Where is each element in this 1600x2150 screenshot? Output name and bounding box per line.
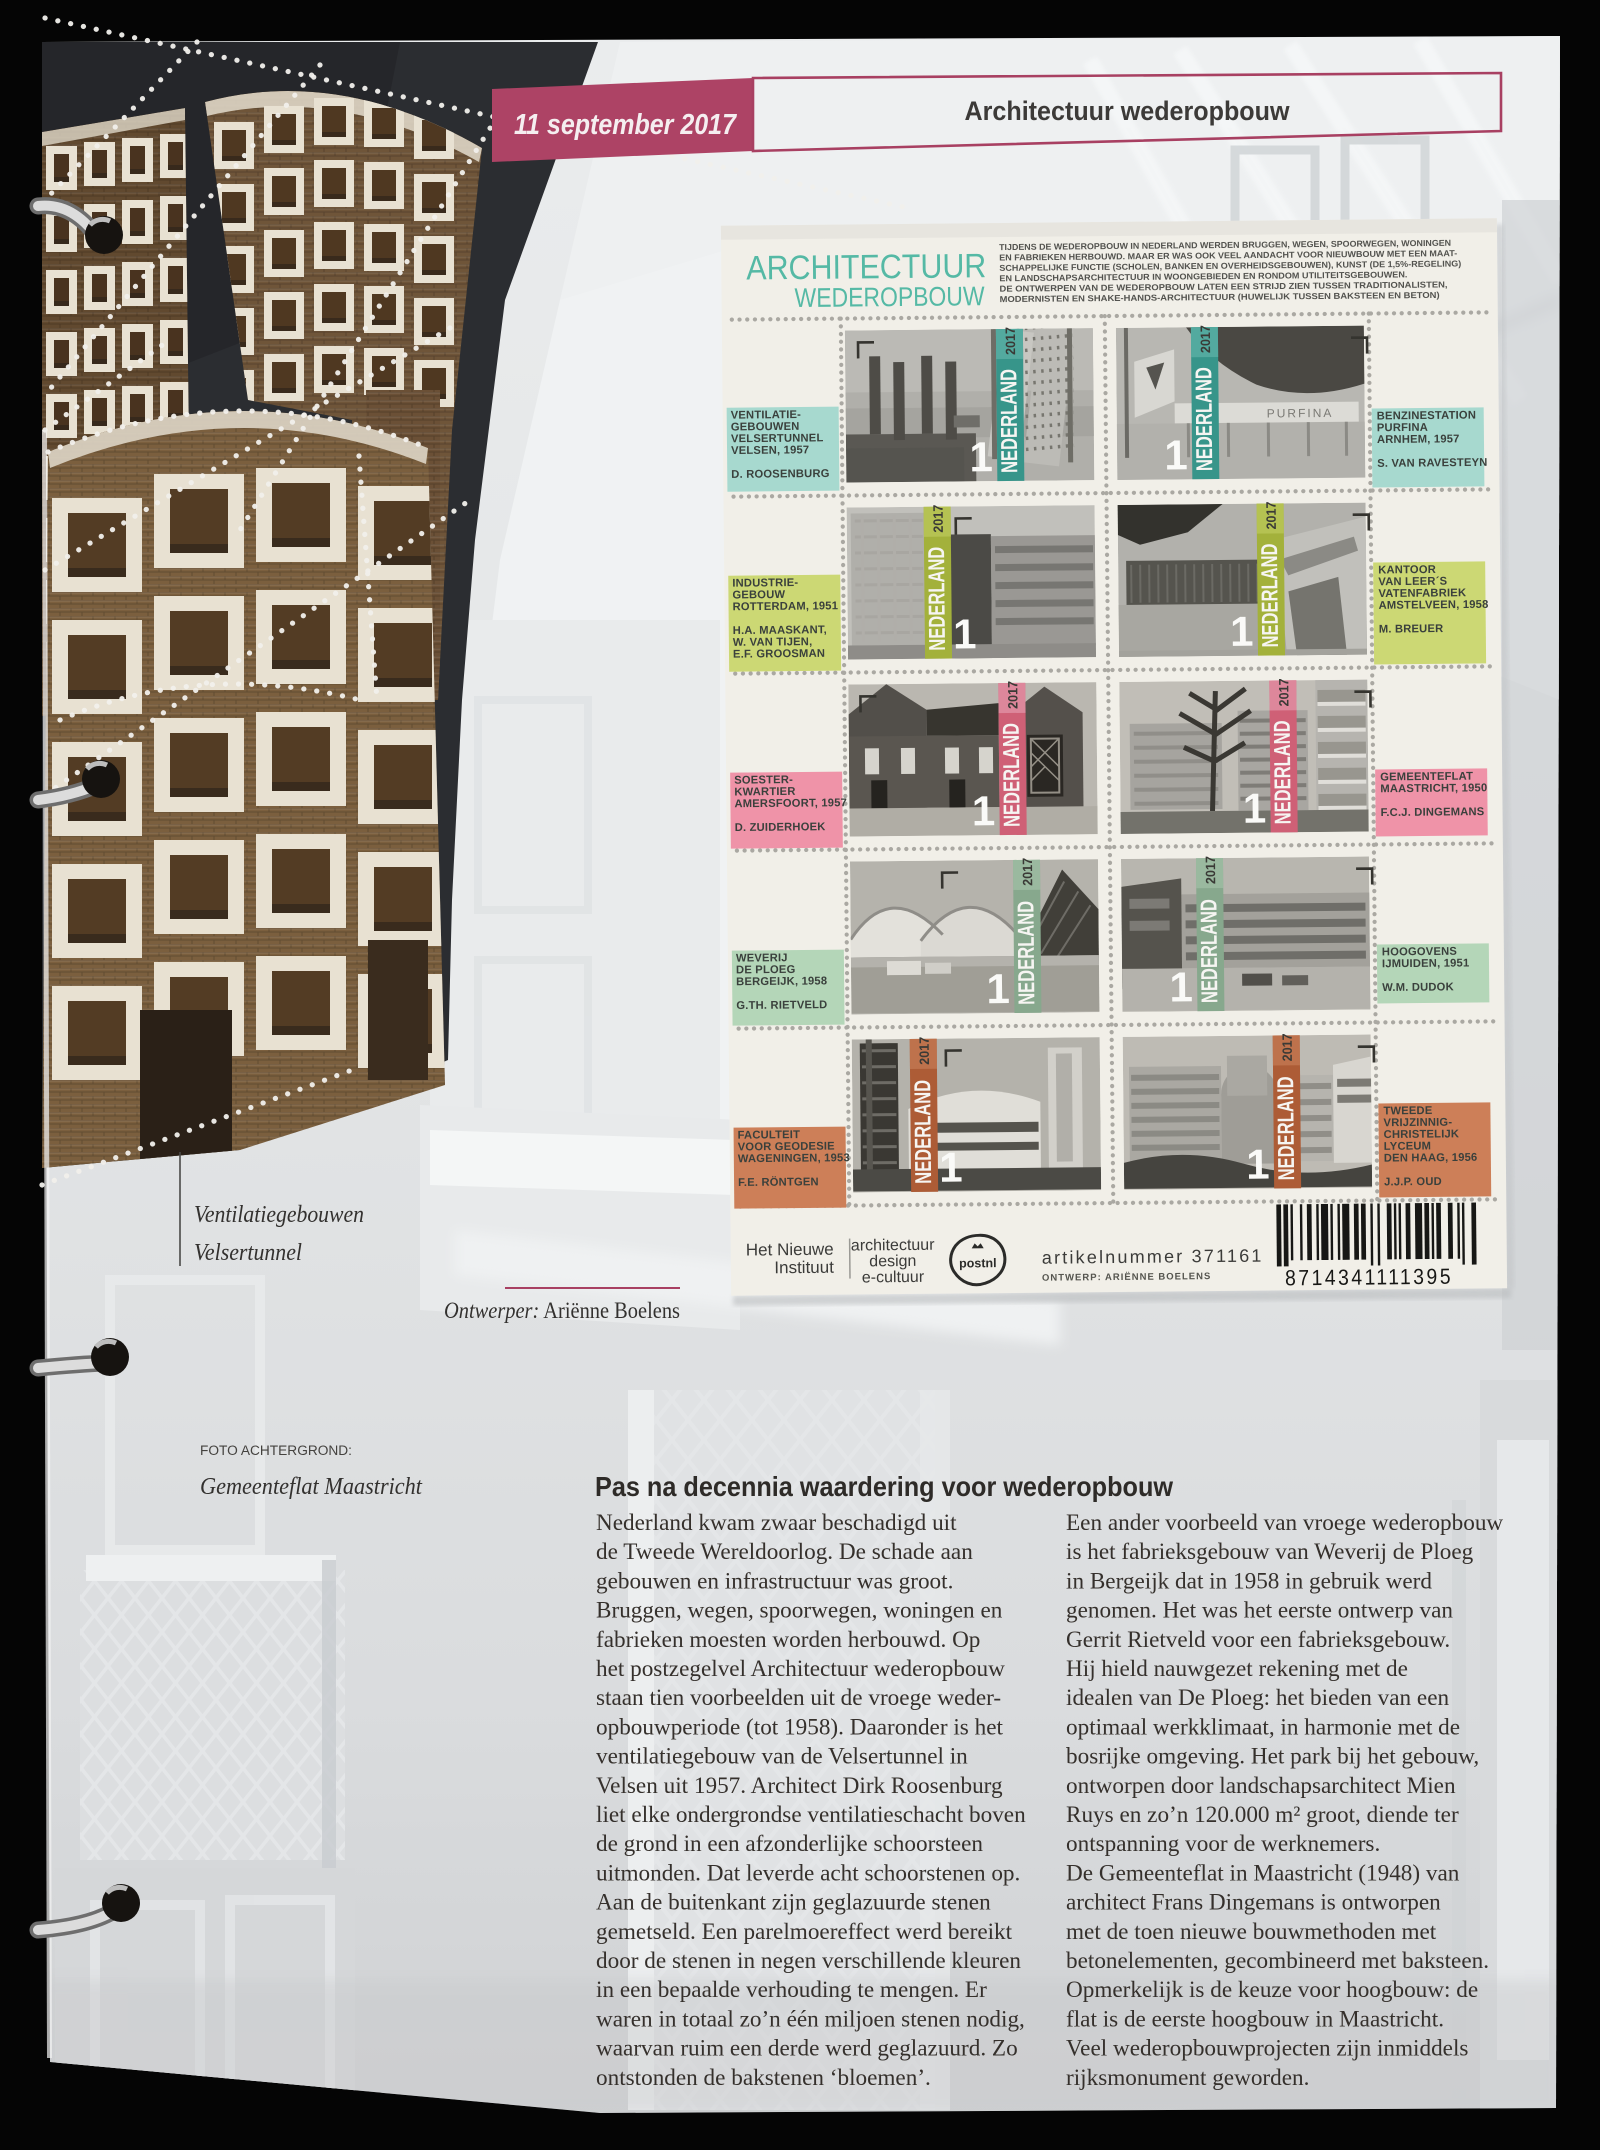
svg-text:FACULTEIT: FACULTEIT <box>738 1129 801 1142</box>
svg-text:PURFINA: PURFINA <box>1267 406 1334 421</box>
svg-text:2017: 2017 <box>1264 501 1279 529</box>
svg-text:Instituut: Instituut <box>774 1258 834 1278</box>
svg-text:Gemeenteflat Maastricht: Gemeenteflat Maastricht <box>200 1474 423 1500</box>
svg-text:gemetseld. Een parelmoereffect: gemetseld. Een parelmoereffect werd bere… <box>596 1919 1013 1945</box>
svg-text:VAN LEER´S: VAN LEER´S <box>1378 576 1447 589</box>
svg-text:waren in totaal zo’n één miljo: waren in totaal zo’n één miljoen stenen … <box>596 2006 1025 2032</box>
svg-text:liet elke ondergrondse ventila: liet elke ondergrondse ventilatieschacht… <box>596 1802 1026 1828</box>
svg-text:2017: 2017 <box>1003 327 1018 355</box>
svg-text:1: 1 <box>1230 608 1254 655</box>
svg-text:waarvan ruim een derde werd ge: waarvan ruim een derde werd geglazuurd. … <box>596 2036 1018 2062</box>
svg-text:uitmonden. Dat leverde acht sc: uitmonden. Dat leverde acht schoorstenen… <box>596 1860 1020 1886</box>
svg-text:1: 1 <box>1246 1141 1270 1188</box>
svg-text:D. ROOSENBURG: D. ROOSENBURG <box>731 468 830 481</box>
svg-text:NEDERLAND: NEDERLAND <box>1190 367 1217 471</box>
svg-text:Architectuur wederopbouw: Architectuur wederopbouw <box>965 96 1291 126</box>
svg-text:NEDERLAND: NEDERLAND <box>909 1080 936 1184</box>
svg-text:GEBOUWEN: GEBOUWEN <box>731 421 800 434</box>
svg-text:VATENFABRIEK: VATENFABRIEK <box>1378 587 1466 600</box>
svg-text:KWARTIER: KWARTIER <box>734 786 795 799</box>
svg-text:DEN HAAG, 1956: DEN HAAG, 1956 <box>1384 1152 1478 1165</box>
svg-text:e-cultuur: e-cultuur <box>862 1269 925 1287</box>
svg-text:ROTTERDAM, 1951: ROTTERDAM, 1951 <box>732 600 838 613</box>
svg-text:F.E. RÖNTGEN: F.E. RÖNTGEN <box>738 1175 819 1189</box>
svg-text:Pas na decennia waardering voo: Pas na decennia waardering voor wederopb… <box>595 1471 1173 1502</box>
svg-text:opbouwperiode (tot 1958). Daar: opbouwperiode (tot 1958). Daaronder is h… <box>596 1714 1004 1740</box>
svg-text:design: design <box>869 1253 916 1270</box>
svg-text:de Tweede Wereldoorlog. De sch: de Tweede Wereldoorlog. De schade aan <box>596 1539 973 1565</box>
svg-text:LYCEUM: LYCEUM <box>1384 1140 1432 1152</box>
svg-text:VENTILATIE-: VENTILATIE- <box>731 409 802 422</box>
svg-text:VRIJZINNIG-: VRIJZINNIG- <box>1383 1117 1452 1130</box>
svg-text:idealen van De Ploeg: het bied: idealen van De Ploeg: het bieden van een <box>1066 1685 1449 1711</box>
svg-text:D. ZUIDERHOEK: D. ZUIDERHOEK <box>735 821 826 834</box>
svg-text:AMSTELVEEN, 1958: AMSTELVEEN, 1958 <box>1379 599 1489 612</box>
svg-text:1: 1 <box>986 965 1010 1012</box>
svg-text:1: 1 <box>1243 785 1267 832</box>
svg-text:met de toen nieuwe bouwmethode: met de toen nieuwe bouwmethoden met <box>1066 1919 1437 1945</box>
svg-text:optimaal werkklimaat, in harmo: optimaal werkklimaat, in harmonie met de <box>1066 1714 1460 1740</box>
svg-text:Aan de buitenkant zijn geglazu: Aan de buitenkant zijn geglazuurde stene… <box>596 1890 991 1916</box>
svg-text:NEDERLAND: NEDERLAND <box>998 723 1025 827</box>
svg-text:GEBOUW: GEBOUW <box>732 589 785 602</box>
svg-text:Ventilatiegebouwen: Ventilatiegebouwen <box>194 1202 364 1228</box>
svg-text:WEDEROPBOUW: WEDEROPBOUW <box>794 281 985 313</box>
svg-text:G.TH. RIETVELD: G.TH. RIETVELD <box>736 999 827 1012</box>
svg-text:is het fabrieksgebouw van Weve: is het fabrieksgebouw van Weverij de Plo… <box>1066 1539 1474 1565</box>
svg-text:het postzegelvel Architectuur: het postzegelvel Architectuur wederopbou… <box>596 1656 1005 1682</box>
svg-text:Opmerkelijk is de keuze voor h: Opmerkelijk is de keuze voor hoogbouw: d… <box>1066 1977 1478 2003</box>
svg-text:BENZINESTATION: BENZINESTATION <box>1377 410 1476 423</box>
svg-text:1: 1 <box>939 1143 963 1190</box>
svg-text:ontspanning voor de werknemers: ontspanning voor de werknemers. <box>1066 1831 1380 1857</box>
svg-text:W. VAN TIJEN,: W. VAN TIJEN, <box>733 636 813 649</box>
svg-text:S. VAN RAVESTEYN: S. VAN RAVESTEYN <box>1377 457 1487 470</box>
svg-text:de grond in een afzonderlijke: de grond in een afzonderlijke schoorstee… <box>596 1831 983 1857</box>
svg-text:ventilatiegebouw van de Velser: ventilatiegebouw van de Velsertunnel in <box>596 1744 968 1770</box>
svg-text:8714341111395: 8714341111395 <box>1285 1264 1453 1291</box>
svg-text:MAASTRICHT, 1950: MAASTRICHT, 1950 <box>1380 782 1487 795</box>
svg-text:ontstonden de bakstenen ‘bloem: ontstonden de bakstenen ‘bloemen’. <box>596 2065 931 2091</box>
svg-text:DE PLOEG: DE PLOEG <box>736 964 796 977</box>
svg-text:in een bepaalde verhouding te: in een bepaalde verhouding te mengen. Er <box>596 1977 987 2003</box>
svg-text:2017: 2017 <box>1198 325 1213 353</box>
svg-text:TWEEDE: TWEEDE <box>1383 1105 1433 1117</box>
svg-text:Bruggen, wegen, spoorwegen, wo: Bruggen, wegen, spoorwegen, woningen en <box>596 1598 1003 1624</box>
svg-text:WEVERIJ: WEVERIJ <box>736 952 788 964</box>
svg-text:PURFINA: PURFINA <box>1377 422 1428 434</box>
svg-text:postnl: postnl <box>959 1256 997 1270</box>
svg-text:F.C.J. DINGEMANS: F.C.J. DINGEMANS <box>1380 806 1484 819</box>
svg-text:1: 1 <box>1164 431 1188 478</box>
svg-text:staan tien voorbeelden uit de: staan tien voorbeelden uit de vroege wed… <box>596 1685 1001 1711</box>
svg-text:artikelnummer 371161: artikelnummer 371161 <box>1042 1246 1264 1268</box>
svg-text:2017: 2017 <box>931 505 946 533</box>
svg-text:ARNHEM, 1957: ARNHEM, 1957 <box>1377 433 1460 446</box>
svg-text:2017: 2017 <box>1280 1033 1295 1061</box>
svg-text:1: 1 <box>969 433 993 480</box>
svg-text:HOOGOVENS: HOOGOVENS <box>1382 946 1458 959</box>
svg-text:M. BREUER: M. BREUER <box>1379 623 1444 636</box>
svg-text:CHRISTELIJK: CHRISTELIJK <box>1384 1128 1460 1141</box>
svg-text:1: 1 <box>953 610 977 657</box>
svg-text:NEDERLAND: NEDERLAND <box>1269 720 1296 824</box>
svg-text:2017: 2017 <box>1203 856 1218 884</box>
svg-text:door de stenen in negen versch: door de stenen in negen verschillende kl… <box>596 1948 1021 1974</box>
svg-text:KANTOOR: KANTOOR <box>1378 564 1436 577</box>
svg-text:BERGEIJK, 1958: BERGEIJK, 1958 <box>736 975 827 988</box>
svg-text:De Gemeenteflat in Maastricht: De Gemeenteflat in Maastricht (1948) van <box>1066 1860 1460 1886</box>
svg-text:in Bergeijk dat in 1958 in geb: in Bergeijk dat in 1958 in gebruik werd <box>1066 1568 1432 1594</box>
svg-text:IJMUIDEN, 1951: IJMUIDEN, 1951 <box>1382 957 1469 970</box>
svg-text:NEDERLAND: NEDERLAND <box>1195 899 1222 1003</box>
svg-text:Velsertunnel: Velsertunnel <box>194 1240 302 1266</box>
svg-text:NEDERLAND: NEDERLAND <box>1256 543 1283 647</box>
svg-text:VELSERTUNNEL: VELSERTUNNEL <box>731 432 824 445</box>
svg-text:AMERSFOORT, 1957: AMERSFOORT, 1957 <box>734 797 847 810</box>
svg-text:NEDERLAND: NEDERLAND <box>995 369 1022 473</box>
svg-text:flat is de eerste hoogbouw in: flat is de eerste hoogbouw in Maastricht… <box>1066 2006 1444 2032</box>
svg-text:FOTO ACHTERGROND:: FOTO ACHTERGROND: <box>200 1443 352 1458</box>
svg-text:Hij hield nauwgezet rekening m: Hij hield nauwgezet rekening met de <box>1066 1656 1408 1682</box>
svg-text:WAGENINGEN, 1953: WAGENINGEN, 1953 <box>738 1152 850 1165</box>
svg-text:ontworpen door landschapsarchi: ontworpen door landschapsarchitect Mien <box>1066 1773 1456 1799</box>
svg-text:Het Nieuwe: Het Nieuwe <box>746 1240 834 1260</box>
svg-text:J.J.P. OUD: J.J.P. OUD <box>1384 1176 1442 1189</box>
svg-text:Ruys en zo’n 120.000 m² groot,: Ruys en zo’n 120.000 m² groot, diende te… <box>1066 1802 1459 1828</box>
svg-text:architect Frans Dingemans is o: architect Frans Dingemans is ontworpen <box>1066 1890 1441 1916</box>
svg-text:NEDERLAND: NEDERLAND <box>1272 1076 1299 1180</box>
svg-text:Veel wederopbouwprojecten zijn: Veel wederopbouwprojecten zijn inmiddels <box>1066 2036 1468 2062</box>
svg-text:1: 1 <box>972 787 996 834</box>
svg-text:Ontwerper: Ariënne Boelens: Ontwerper: Ariënne Boelens <box>444 1298 680 1323</box>
svg-text:2017: 2017 <box>1005 681 1020 709</box>
svg-text:Gerrit Rietveld voor een fabri: Gerrit Rietveld voor een fabrieksgebouw. <box>1066 1627 1450 1653</box>
svg-text:fabrieken moesten worden herbo: fabrieken moesten worden herbouwd. Op <box>596 1627 980 1653</box>
svg-text:SOESTER-: SOESTER- <box>734 774 793 787</box>
svg-text:2017: 2017 <box>917 1037 932 1065</box>
svg-text:11 september 2017: 11 september 2017 <box>514 109 738 141</box>
svg-text:gebouwen en infrastructuur was: gebouwen en infrastructuur was groot. <box>596 1568 953 1594</box>
svg-text:bosrijke omgeving. Het park bi: bosrijke omgeving. Het park bij het gebo… <box>1066 1744 1479 1770</box>
svg-text:2017: 2017 <box>1276 678 1291 706</box>
svg-text:E.F. GROOSMAN: E.F. GROOSMAN <box>733 648 825 661</box>
svg-text:architectuur: architectuur <box>851 1237 935 1255</box>
svg-text:rijksmonument geworden.: rijksmonument geworden. <box>1066 2065 1309 2091</box>
svg-text:INDUSTRIE-: INDUSTRIE- <box>732 577 798 590</box>
svg-text:2017: 2017 <box>1020 858 1035 886</box>
svg-text:betonelementen, gecombineerd m: betonelementen, gecombineerd met bakstee… <box>1066 1948 1489 1974</box>
svg-text:NEDERLAND: NEDERLAND <box>923 547 950 651</box>
svg-text:Een ander voorbeeld van vroege: Een ander voorbeeld van vroege wederopbo… <box>1066 1510 1503 1536</box>
svg-text:ONTWERP: ARIËNNE BOELENS: ONTWERP: ARIËNNE BOELENS <box>1042 1271 1211 1284</box>
svg-text:W.M. DUDOK: W.M. DUDOK <box>1382 981 1454 994</box>
svg-text:Nederland kwam zwaar beschadig: Nederland kwam zwaar beschadigd uit <box>596 1510 957 1536</box>
svg-text:Velsen uit 1957. Architect Dir: Velsen uit 1957. Architect Dirk Roosenbu… <box>596 1773 1003 1799</box>
svg-text:H.A. MAASKANT,: H.A. MAASKANT, <box>733 624 827 637</box>
svg-text:genomen. Het was het eerste on: genomen. Het was het eerste ontwerp van <box>1066 1598 1453 1624</box>
svg-text:NEDERLAND: NEDERLAND <box>1012 901 1039 1005</box>
svg-text:VELSEN, 1957: VELSEN, 1957 <box>731 444 809 457</box>
svg-text:1: 1 <box>1169 963 1193 1010</box>
